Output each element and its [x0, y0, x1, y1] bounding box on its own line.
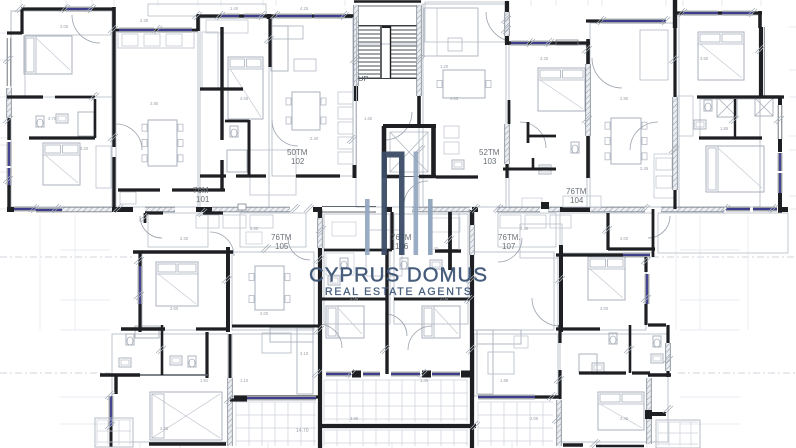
svg-text:3.85: 3.85 [350, 416, 359, 421]
svg-text:52TM: 52TM [479, 148, 500, 157]
svg-text:2.45: 2.45 [160, 426, 169, 431]
svg-text:4.05: 4.05 [240, 96, 249, 101]
svg-text:14.70: 14.70 [296, 428, 309, 434]
svg-text:105: 105 [275, 242, 289, 251]
svg-text:50TM: 50TM [287, 148, 308, 157]
svg-text:1.20: 1.20 [440, 64, 449, 69]
svg-text:REAL ESTATE AGENTS: REAL ESTATE AGENTS [325, 286, 471, 298]
svg-text:1.85: 1.85 [720, 126, 729, 131]
svg-text:3.60: 3.60 [700, 56, 709, 61]
svg-text:UP: UP [358, 74, 368, 83]
svg-text:2.30: 2.30 [250, 226, 259, 231]
svg-text:76TM.: 76TM. [498, 233, 521, 242]
svg-text:103: 103 [483, 157, 497, 166]
svg-text:3.60: 3.60 [170, 306, 179, 311]
svg-text:2.85: 2.85 [150, 101, 159, 106]
svg-text:2.00: 2.00 [620, 236, 629, 241]
svg-text:4.05: 4.05 [450, 96, 459, 101]
svg-text:3.00: 3.00 [600, 306, 609, 311]
svg-text:3.10: 3.10 [300, 351, 309, 356]
svg-text:1.91: 1.91 [200, 378, 209, 383]
svg-text:2.05: 2.05 [530, 416, 539, 421]
svg-text:2.30: 2.30 [180, 236, 189, 241]
svg-text:3.05: 3.05 [60, 24, 69, 29]
svg-text:1.40: 1.40 [230, 6, 239, 11]
svg-text:2.45: 2.45 [640, 166, 649, 171]
svg-text:4.25: 4.25 [300, 6, 309, 11]
svg-text:2.40: 2.40 [310, 136, 319, 141]
svg-text:2.80: 2.80 [620, 96, 629, 101]
svg-text:102: 102 [291, 157, 305, 166]
svg-text:3.25: 3.25 [540, 56, 549, 61]
svg-text:104: 104 [570, 196, 584, 205]
svg-text:76TM: 76TM [566, 187, 587, 196]
svg-text:2.45: 2.45 [620, 416, 629, 421]
svg-text:3.00: 3.00 [260, 311, 269, 316]
svg-text:1.40: 1.40 [420, 378, 429, 383]
svg-text:CYPRUS DOMUS: CYPRUS DOMUS [309, 264, 487, 287]
svg-text:3.75: 3.75 [48, 116, 57, 121]
svg-text:76M: 76M [193, 186, 209, 195]
svg-text:1.10: 1.10 [240, 378, 249, 383]
svg-text:1.88: 1.88 [500, 378, 509, 383]
svg-text:2.30: 2.30 [520, 226, 529, 231]
svg-text:1.60: 1.60 [364, 116, 373, 121]
svg-text:3.20: 3.20 [80, 146, 89, 151]
svg-text:76TM: 76TM [271, 233, 292, 242]
svg-text:2.30: 2.30 [140, 18, 149, 23]
svg-text:101: 101 [196, 195, 210, 204]
svg-text:107: 107 [502, 242, 516, 251]
